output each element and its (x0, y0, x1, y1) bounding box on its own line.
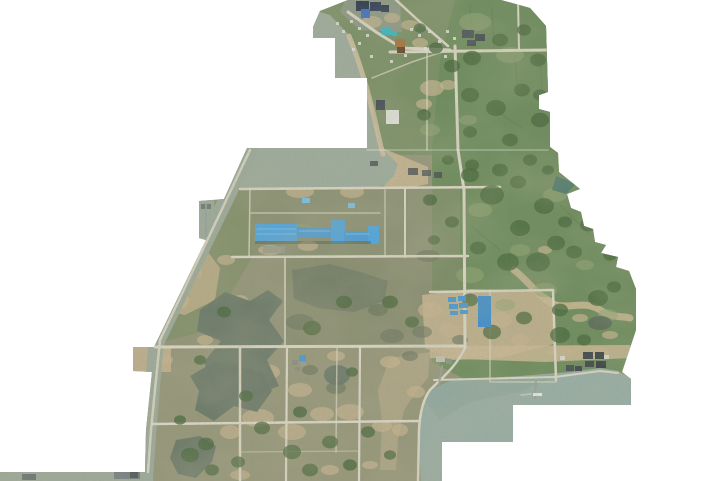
orthophoto-page (0, 0, 723, 481)
aerial-orthomosaic-image (0, 0, 723, 481)
